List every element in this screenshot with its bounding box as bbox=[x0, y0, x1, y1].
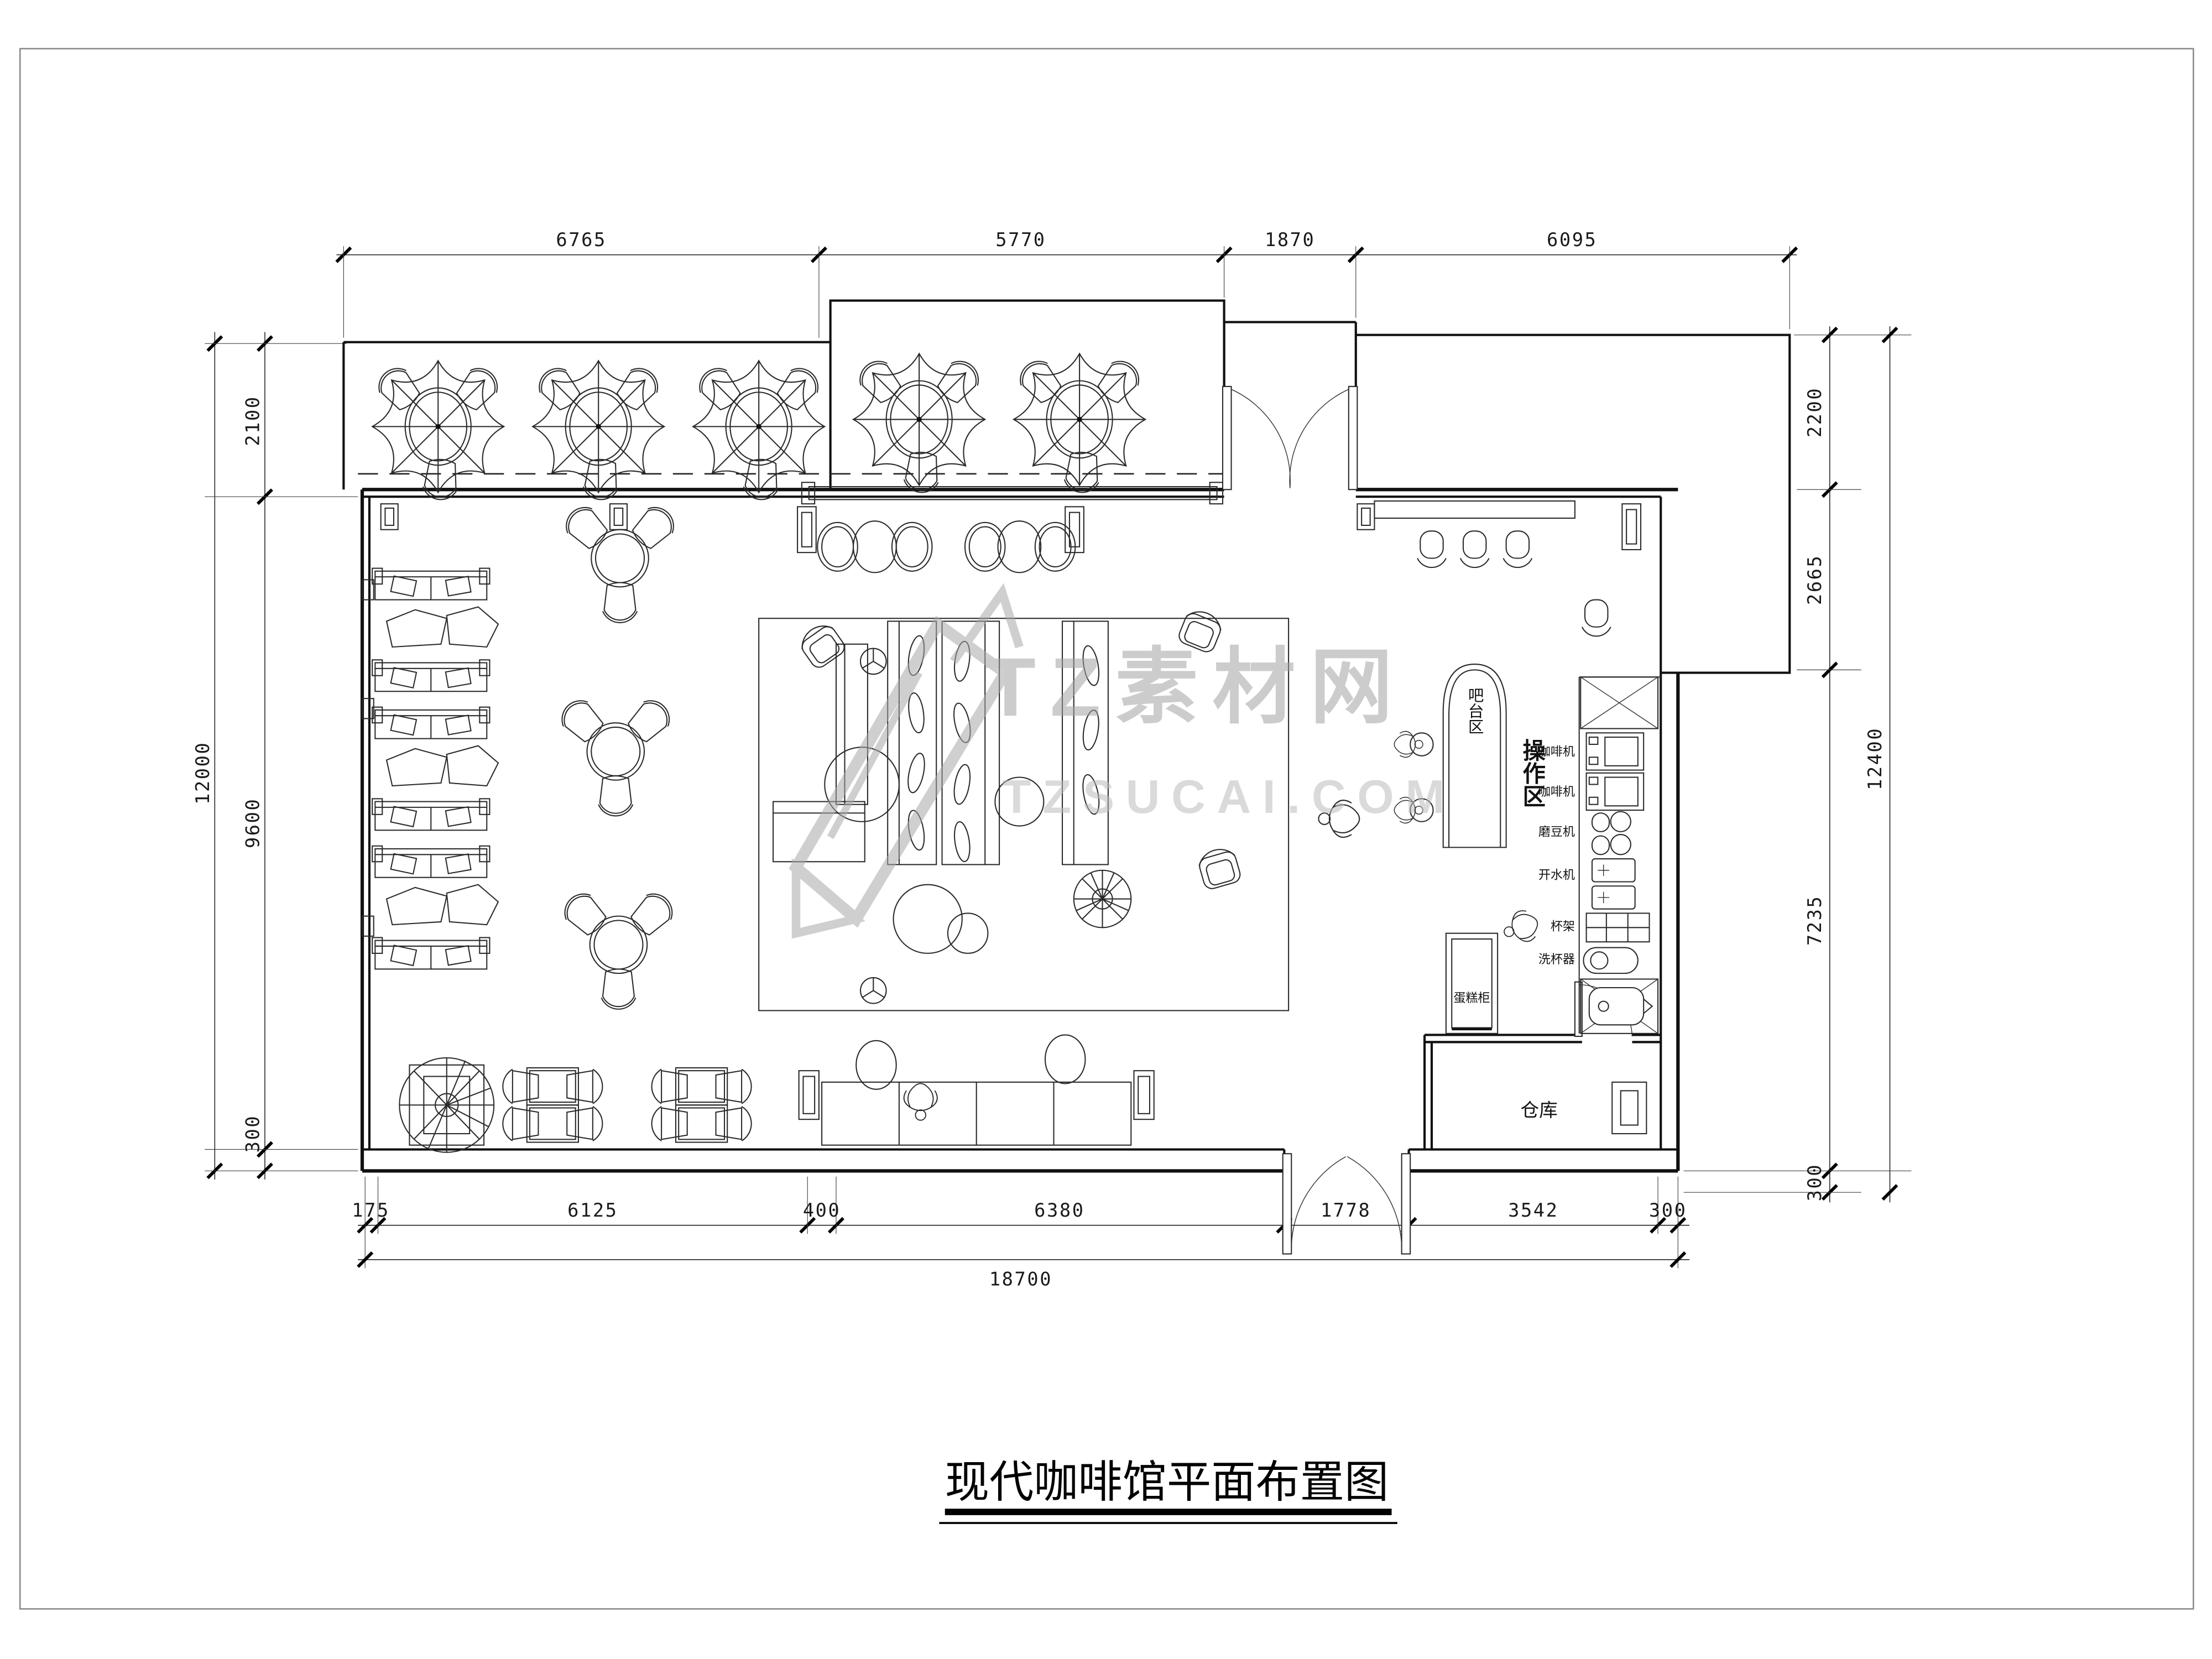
lounge-armchair bbox=[1196, 845, 1242, 890]
entry-double-door bbox=[1223, 387, 1357, 489]
column bbox=[1622, 504, 1641, 550]
water-boiler bbox=[1592, 859, 1635, 909]
window-seating bbox=[817, 521, 1075, 572]
column bbox=[1065, 507, 1084, 552]
coffee-table bbox=[948, 913, 988, 953]
warehouse-label: 仓库 bbox=[1521, 1100, 1558, 1121]
column bbox=[797, 507, 816, 552]
side-table bbox=[860, 649, 886, 675]
title-block: 现代咖啡馆平面布置图 bbox=[939, 1458, 1397, 1524]
watermark-brand: TZ素材网 bbox=[985, 640, 1407, 733]
four-seat-table bbox=[652, 1068, 752, 1142]
floorplan-canvas: 6765 5770 1870 6095 12000 2100 9600 300 … bbox=[0, 0, 2212, 1659]
spiral-decor bbox=[399, 1058, 494, 1152]
walls-layer bbox=[343, 301, 1790, 1171]
coffee-machine bbox=[1587, 733, 1644, 770]
column bbox=[381, 504, 398, 530]
dim-bottom-total: 18700 bbox=[989, 1268, 1052, 1290]
cup-rack bbox=[1587, 913, 1650, 942]
dim-top-3: 1870 bbox=[1265, 229, 1315, 251]
equip-label-1: 咖啡机 bbox=[1538, 745, 1575, 759]
booth-tables bbox=[387, 607, 498, 646]
lounge-armchair bbox=[796, 619, 848, 671]
round-table-three-chairs bbox=[560, 501, 680, 623]
booth-sofa bbox=[372, 846, 489, 878]
dim-bottom-1: 175 bbox=[352, 1199, 390, 1221]
page-border bbox=[20, 49, 2193, 1609]
dim-left-1: 2100 bbox=[242, 395, 264, 446]
warehouse-column bbox=[1612, 1082, 1646, 1134]
equip-label-2: 咖啡机 bbox=[1538, 785, 1575, 799]
equip-label-6: 洗杯器 bbox=[1538, 952, 1575, 966]
booth-sofa bbox=[372, 568, 489, 600]
parasol-table bbox=[533, 361, 664, 501]
booth-tables bbox=[387, 746, 498, 786]
booth-tables bbox=[387, 885, 498, 925]
booth-sofa bbox=[372, 937, 489, 969]
dimension-layer: 6765 5770 1870 6095 12000 2100 9600 300 … bbox=[192, 229, 1911, 1290]
equip-label-5: 杯架 bbox=[1551, 919, 1575, 933]
dim-bottom-7: 300 bbox=[1649, 1199, 1687, 1221]
column bbox=[1357, 504, 1374, 530]
four-seat-table bbox=[503, 1068, 602, 1142]
dim-bottom-6: 3542 bbox=[1508, 1199, 1558, 1221]
bar-stool bbox=[1417, 531, 1446, 567]
parasol-table bbox=[1014, 353, 1145, 494]
dim-left-2: 9600 bbox=[242, 798, 264, 848]
potted-plant bbox=[1074, 870, 1131, 928]
dim-right-1: 2200 bbox=[1804, 387, 1825, 437]
round-table-three-chairs bbox=[555, 694, 676, 816]
cake-cabinet-label: 蛋糕柜 bbox=[1453, 991, 1490, 1005]
parasol-table bbox=[372, 361, 504, 501]
dim-right-2: 2665 bbox=[1804, 555, 1825, 605]
dim-bottom-3: 400 bbox=[803, 1199, 841, 1221]
operation-area bbox=[1579, 677, 1661, 1034]
parasol-table bbox=[853, 353, 985, 494]
dim-right-3: 7235 bbox=[1804, 895, 1825, 946]
cup-washer bbox=[1583, 948, 1637, 974]
side-table bbox=[860, 978, 886, 1004]
dim-top-2: 5770 bbox=[995, 229, 1046, 251]
parasol-table bbox=[693, 361, 825, 501]
coffee-table bbox=[894, 885, 962, 953]
dim-right-total: 12400 bbox=[1864, 727, 1886, 790]
equip-label-4: 开水机 bbox=[1538, 868, 1575, 881]
dim-bottom-4: 6380 bbox=[1034, 1199, 1084, 1221]
booth-sofa bbox=[372, 799, 489, 830]
coffee-machine bbox=[1587, 773, 1644, 810]
round-table-three-chairs bbox=[558, 888, 679, 1009]
drawing-title: 现代咖啡馆平面布置图 bbox=[945, 1458, 1389, 1507]
bottom-bench bbox=[799, 1035, 1154, 1145]
dim-bottom-2: 6125 bbox=[567, 1199, 618, 1221]
bar-stool bbox=[1460, 531, 1489, 567]
bar-area-label: 吧台区 bbox=[1466, 687, 1484, 734]
dim-left-3: 300 bbox=[242, 1115, 264, 1153]
sink bbox=[1580, 979, 1658, 1033]
cake-cabinet bbox=[1446, 907, 1542, 1034]
equip-label-3: 磨豆机 bbox=[1538, 825, 1575, 839]
dim-left-total: 12000 bbox=[192, 742, 213, 805]
watermark-domain: TZSUCAI.COM bbox=[1002, 771, 1456, 823]
dim-top-1: 6765 bbox=[556, 229, 606, 251]
column bbox=[610, 504, 627, 530]
bar-stool bbox=[1582, 600, 1611, 637]
dim-bottom-5: 1778 bbox=[1321, 1199, 1371, 1221]
grinder bbox=[1592, 812, 1631, 855]
dim-top-4: 6095 bbox=[1547, 229, 1597, 251]
bar-stool bbox=[1503, 531, 1532, 567]
booth-sofa bbox=[372, 660, 489, 691]
window-bar bbox=[1357, 501, 1641, 636]
booth-sofa bbox=[372, 707, 489, 739]
dim-right-4: 300 bbox=[1804, 1164, 1825, 1202]
